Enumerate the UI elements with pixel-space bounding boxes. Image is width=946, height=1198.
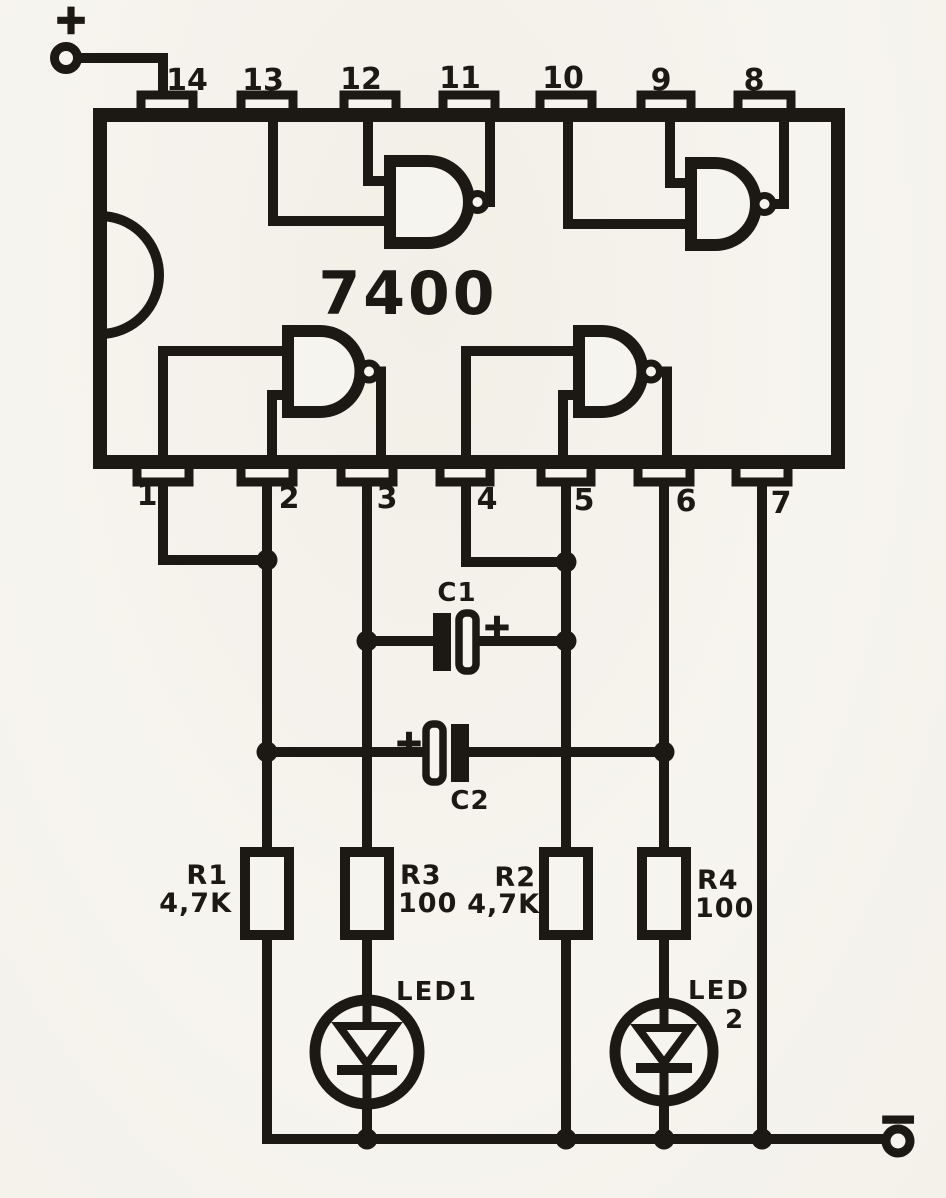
r4-value-label: 100 [695,893,754,924]
r2-body [544,852,588,935]
c2-label: C2 [450,786,489,816]
pin-label-5: 5 [574,483,595,518]
resistor-r2: R2 4,7K [467,852,588,935]
pin-label-6: 6 [676,484,697,519]
wire-gate3-to-pin3 [377,372,381,467]
c1-positive-plate-icon [459,613,476,671]
schematic-page: + 7400 14 13 12 [0,0,946,1198]
pin-label-4: 4 [477,482,498,517]
pin-label-10: 10 [542,61,584,96]
junction-dot [357,631,378,652]
junction-dot [357,1129,378,1150]
nand-gate-2-bubble-icon [756,196,773,213]
wire-pin13-to-gate1 [273,116,392,221]
ic-label: 7400 [319,259,498,329]
c2-negative-plate-icon [451,724,469,782]
nand-gate-3-body [288,331,361,412]
nand-gate-2-body [691,163,756,245]
wire-pin1-stub [163,478,262,560]
ic-notch-icon [100,216,159,334]
pin-label-9: 9 [651,63,672,98]
pin-label-14: 14 [166,63,208,98]
pin-label-2: 2 [279,481,300,516]
nand-gate-3-bubble-icon [361,363,378,380]
pin-label-12: 12 [340,62,382,97]
pin-label-11: 11 [439,61,481,96]
led2-symbol: LED 2 [615,976,750,1101]
pin-label-1: 1 [137,478,158,513]
resistor-r1: R1 4,7K [159,852,289,935]
pin-label-3: 3 [377,481,398,516]
negative-terminal-label: − [879,1091,918,1145]
led1-symbol: LED1 [315,977,478,1104]
junction-dot [654,742,675,763]
nand-gate-4-body [579,331,643,412]
junction-dot [654,1129,675,1150]
nand-gate-1 [390,161,486,243]
nand-gate-1-body [390,161,469,243]
c1-plus-sign: + [483,607,512,647]
junction-dot [752,1129,773,1150]
junction-dot [257,550,278,571]
nand-gate-2 [691,163,773,245]
pin-label-13: 13 [242,63,284,98]
led2-label: LED [688,976,750,1006]
c1-negative-plate-icon [433,613,451,671]
nand-gate-4 [579,331,660,412]
r3-body [345,852,389,935]
wire-positive-to-pin14 [77,58,163,94]
capacitor-c1: C1 + [433,578,511,671]
wire-gate4-to-pin6 [659,372,667,467]
led2-number-label: 2 [725,1005,745,1035]
r3-value-label: 100 [398,888,457,919]
r1-value-label: 4,7K [159,888,232,919]
c2-positive-plate-icon [426,724,443,782]
pin-label-7: 7 [771,486,792,521]
junction-dot [556,1129,577,1150]
resistor-r4: R4 100 [642,852,754,935]
r4-body [642,852,686,935]
led1-label: LED1 [396,977,478,1007]
r4-name-label: R4 [697,865,739,896]
junction-dot [257,742,278,763]
capacitor-c2: + C2 [395,723,490,816]
pin-label-8: 8 [744,63,765,98]
circuit-schematic: + 7400 14 13 12 [0,0,946,1198]
junction-dot [556,631,577,652]
nand-gate-1-bubble-icon [469,194,486,211]
c2-plus-sign: + [395,723,424,763]
r3-name-label: R3 [400,860,442,891]
c1-label: C1 [437,578,476,608]
wire-gate1-to-pin11 [486,116,490,202]
r2-value-label: 4,7K [467,889,540,920]
junction-dot [556,552,577,573]
r1-body [245,852,289,935]
nand-gate-3 [288,331,378,412]
nand-gate-4-bubble-icon [643,363,660,380]
wire-gate2-to-pin8 [773,116,784,204]
r1-name-label: R1 [186,860,228,891]
positive-terminal-icon [55,47,78,70]
resistor-r3: R3 100 [345,852,457,935]
positive-terminal-label: + [54,0,88,43]
